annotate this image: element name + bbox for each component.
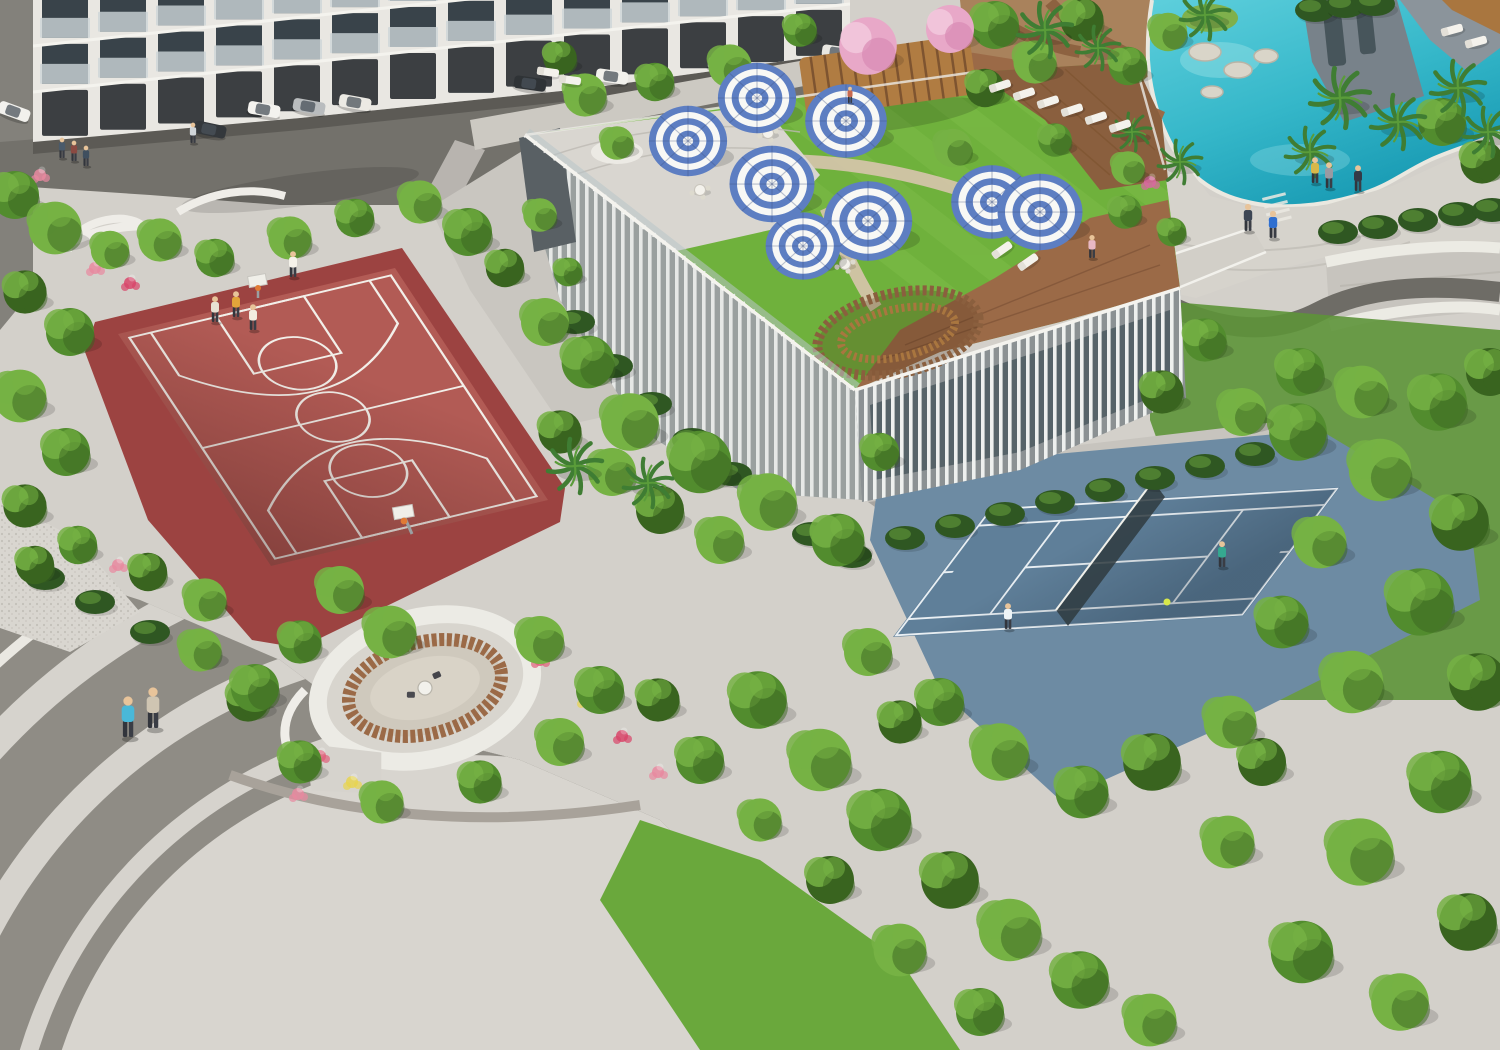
building-window (40, 18, 90, 38)
scene-canvas (0, 0, 1500, 1050)
building-window (156, 52, 206, 72)
tennis-ball (1164, 599, 1171, 606)
building-window (448, 47, 494, 93)
building-window (794, 0, 844, 4)
building-window (272, 39, 322, 59)
building-window (620, 2, 670, 22)
building-window (446, 21, 496, 41)
building-window (156, 6, 206, 26)
building-window (158, 78, 204, 124)
building-window (330, 0, 380, 7)
building-window (98, 12, 148, 32)
building-window (388, 27, 438, 47)
building-window (272, 0, 322, 13)
building-window (330, 33, 380, 53)
building-window (42, 90, 88, 136)
building-window (100, 84, 146, 130)
building-window (40, 64, 90, 84)
building-window (390, 53, 436, 99)
building-window (736, 0, 786, 10)
building-window (504, 15, 554, 35)
building-window (214, 45, 264, 65)
building-window (214, 0, 264, 19)
aerial-rendering: Aerial 3D rendering of a residential com… (0, 0, 1500, 1050)
building-window (562, 9, 612, 29)
building-window (678, 0, 728, 16)
building-window (388, 0, 438, 1)
building-window (98, 58, 148, 78)
